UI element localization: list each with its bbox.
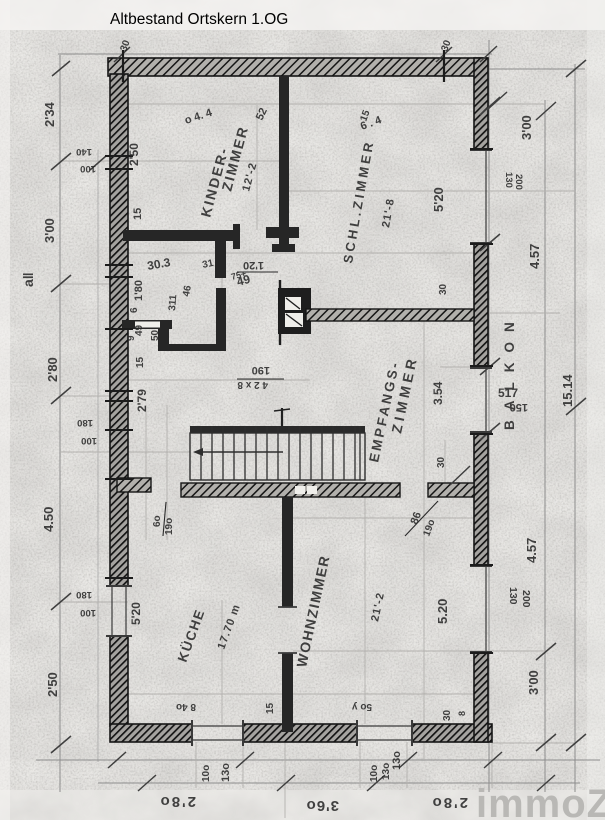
svg-text:6: 6 bbox=[129, 307, 140, 313]
svg-text:30: 30 bbox=[442, 709, 453, 721]
svg-text:140: 140 bbox=[76, 146, 92, 157]
svg-text:Altbestand Ortskern 1.OG: Altbestand Ortskern 1.OG bbox=[110, 11, 288, 28]
svg-text:3'00: 3'00 bbox=[42, 218, 57, 243]
svg-text:8: 8 bbox=[457, 711, 467, 716]
svg-text:2'8o: 2'8o bbox=[431, 794, 468, 811]
svg-text:15: 15 bbox=[135, 356, 146, 368]
svg-text:311: 311 bbox=[167, 294, 179, 311]
svg-text:10o: 10o bbox=[369, 765, 380, 782]
svg-text:30: 30 bbox=[436, 456, 447, 468]
svg-text:150: 150 bbox=[510, 401, 528, 413]
svg-text:200: 200 bbox=[513, 174, 524, 190]
svg-text:130: 130 bbox=[507, 587, 519, 605]
svg-text:13o: 13o bbox=[391, 751, 403, 770]
svg-text:4.57: 4.57 bbox=[524, 538, 539, 563]
svg-text:100: 100 bbox=[81, 435, 97, 446]
svg-text:180: 180 bbox=[76, 589, 92, 600]
svg-text:10o: 10o bbox=[201, 765, 212, 782]
svg-text:4 2 x 8: 4 2 x 8 bbox=[237, 379, 268, 390]
svg-text:2'50: 2'50 bbox=[45, 672, 60, 697]
svg-text:3'00: 3'00 bbox=[526, 670, 541, 695]
svg-text:180: 180 bbox=[77, 417, 93, 428]
svg-text:49: 49 bbox=[134, 324, 145, 336]
svg-text:9: 9 bbox=[126, 335, 137, 341]
svg-text:19o: 19o bbox=[164, 518, 175, 535]
svg-text:15.14: 15.14 bbox=[560, 374, 575, 407]
svg-text:3'00: 3'00 bbox=[519, 115, 534, 140]
svg-text:5'20: 5'20 bbox=[431, 187, 446, 212]
svg-text:1'80: 1'80 bbox=[133, 280, 145, 301]
svg-text:2'79: 2'79 bbox=[135, 389, 149, 412]
svg-text:2'80: 2'80 bbox=[45, 357, 60, 382]
svg-text:1'20: 1'20 bbox=[243, 259, 264, 271]
svg-text:8 4o: 8 4o bbox=[176, 701, 196, 712]
svg-text:15: 15 bbox=[265, 702, 276, 714]
svg-text:3'6o: 3'6o bbox=[306, 797, 339, 814]
svg-text:a‖: a‖ bbox=[20, 272, 36, 287]
svg-text:2'34: 2'34 bbox=[42, 101, 57, 127]
svg-text:5'20: 5'20 bbox=[129, 602, 143, 625]
svg-text:5o y: 5o y bbox=[352, 701, 372, 712]
svg-text:immoZ: immoZ bbox=[476, 782, 605, 820]
svg-text:30: 30 bbox=[438, 283, 449, 295]
svg-text:190: 190 bbox=[252, 364, 270, 376]
svg-text:13o: 13o bbox=[220, 763, 232, 782]
svg-text:517: 517 bbox=[498, 386, 518, 400]
svg-text:2'50: 2'50 bbox=[127, 143, 141, 166]
svg-text:6o: 6o bbox=[152, 515, 163, 527]
svg-text:200: 200 bbox=[520, 590, 532, 608]
svg-text:4.57: 4.57 bbox=[527, 244, 542, 269]
svg-text:130: 130 bbox=[503, 172, 514, 188]
svg-text:4.50: 4.50 bbox=[41, 507, 56, 532]
svg-text:100: 100 bbox=[80, 607, 96, 618]
svg-text:15: 15 bbox=[132, 208, 144, 220]
svg-text:5.20: 5.20 bbox=[435, 599, 450, 624]
svg-text:3.54: 3.54 bbox=[431, 381, 445, 405]
svg-text:100: 100 bbox=[80, 163, 96, 174]
svg-text:50: 50 bbox=[150, 329, 161, 341]
svg-text:2'8o: 2'8o bbox=[159, 793, 196, 810]
